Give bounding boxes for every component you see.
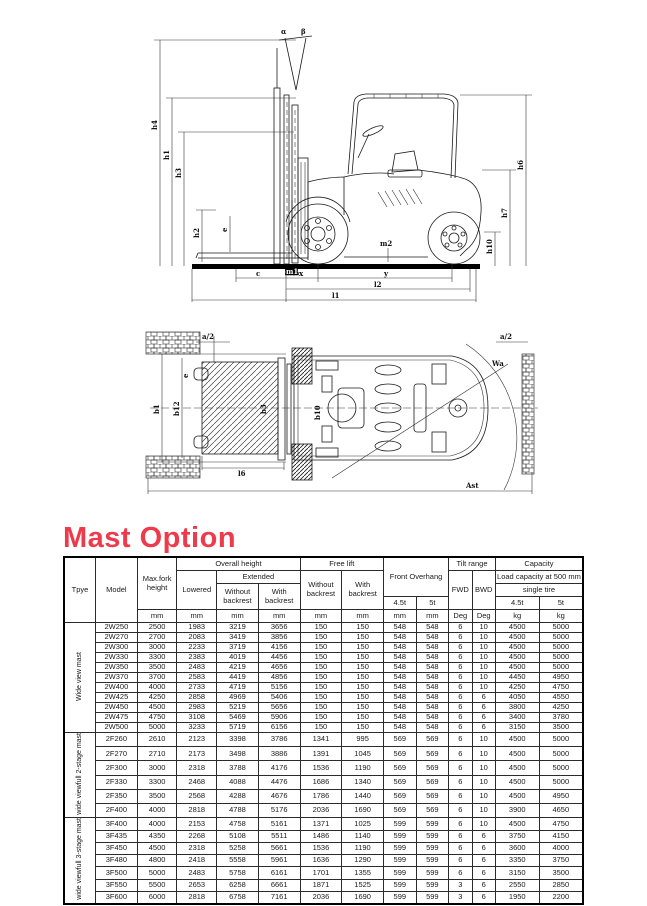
header-fwd: FWD [449, 571, 472, 610]
header-fl-without-backrest: Without backrest [300, 571, 342, 610]
dim-b10: b10 [313, 405, 322, 420]
spec-cell: 1045 [342, 747, 384, 761]
spec-cell: 4856 [258, 673, 300, 683]
spec-cell: 3750 [495, 830, 539, 842]
model-cell: 2F270 [96, 747, 138, 761]
page-title: Mast Option [63, 522, 236, 555]
spec-cell: 150 [300, 643, 342, 653]
spec-cell: 1440 [342, 789, 384, 803]
spec-cell: 599 [384, 818, 417, 830]
spec-cell: 5000 [539, 623, 583, 633]
table-header: Tpye Model Max.fork height Overall heigh… [64, 557, 583, 623]
spec-cell: 569 [384, 733, 417, 747]
spec-cell: 2700 [137, 633, 177, 643]
spec-cell: 599 [384, 855, 417, 867]
spec-cell: 548 [416, 643, 449, 653]
table-row: Wide view mast2W250250019833219365615015… [64, 623, 583, 633]
spec-cell: 2318 [177, 842, 217, 854]
spec-cell: 150 [342, 693, 384, 703]
spec-cell: 4500 [137, 703, 177, 713]
spec-cell: 548 [384, 703, 417, 713]
spec-cell: 5511 [258, 830, 300, 842]
spec-cell: 1950 [495, 891, 539, 903]
spec-cell: 6 [449, 643, 472, 653]
spec-cell: 3500 [137, 663, 177, 673]
spec-cell: 150 [342, 683, 384, 693]
spec-cell: 4650 [539, 804, 583, 818]
spec-cell: 6 [449, 633, 472, 643]
spec-cell: 1355 [342, 867, 384, 879]
spec-cell: 569 [384, 789, 417, 803]
spec-cell: 548 [416, 653, 449, 663]
spec-cell: 5176 [258, 804, 300, 818]
spec-cell: 4176 [258, 761, 300, 775]
spec-cell: 4288 [217, 789, 259, 803]
dim-c: c [256, 269, 260, 278]
spec-cell: 150 [342, 673, 384, 683]
model-cell: 3F500 [96, 867, 138, 879]
spec-cell: 1025 [342, 818, 384, 830]
unit-cell: mm [300, 610, 342, 623]
spec-cell: 3000 [137, 761, 177, 775]
spec-cell: 4788 [217, 804, 259, 818]
spec-cell: 10 [472, 623, 495, 633]
spec-cell: 5000 [539, 775, 583, 789]
header-front-overhang: Front Overhang [384, 557, 449, 597]
spec-cell: 1190 [342, 761, 384, 775]
spec-cell: 569 [416, 804, 449, 818]
spec-cell: 6 [449, 703, 472, 713]
spec-cell: 6156 [258, 723, 300, 733]
dim-e-top: e [181, 373, 190, 378]
spec-cell: 6 [472, 713, 495, 723]
spec-cell: 548 [384, 713, 417, 723]
spec-cell: 5558 [217, 855, 259, 867]
spec-cell: 3 [449, 879, 472, 891]
spec-cell: 6 [449, 830, 472, 842]
table-row: 2W50050003233571961561501505485486631503… [64, 723, 583, 733]
spec-cell: 548 [384, 633, 417, 643]
spec-cell: 6 [472, 723, 495, 733]
spec-cell: 548 [416, 673, 449, 683]
spec-cell: 6 [472, 879, 495, 891]
spec-cell: 6 [449, 804, 472, 818]
spec-cell: 548 [416, 683, 449, 693]
header-tilt-range: Tilt range [449, 557, 496, 571]
spec-cell: 5000 [539, 761, 583, 775]
spec-cell: 599 [416, 867, 449, 879]
header-max-fork-height: Max.fork height [137, 557, 177, 610]
spec-cell: 5000 [137, 723, 177, 733]
spec-cell: 6 [449, 747, 472, 761]
model-cell: 2F330 [96, 775, 138, 789]
spec-cell: 3150 [495, 723, 539, 733]
spec-cell: 599 [416, 830, 449, 842]
unit-cell: mm [137, 610, 177, 623]
table-row: 2W33033002383401944561501505485486104500… [64, 653, 583, 663]
spec-cell: 150 [342, 663, 384, 673]
mast-type-label: wide viewfull 2-stage mast [64, 733, 96, 818]
spec-cell: 10 [472, 643, 495, 653]
spec-cell: 4450 [495, 673, 539, 683]
spec-cell: 2568 [177, 789, 217, 803]
spec-cell: 2268 [177, 830, 217, 842]
spec-cell: 599 [384, 830, 417, 842]
spec-cell: 4419 [217, 673, 259, 683]
spec-cell: 6 [449, 673, 472, 683]
spec-cell: 6161 [258, 867, 300, 879]
unit-cell: mm [177, 610, 217, 623]
header-cap-45t: 4.5t [495, 597, 539, 610]
unit-cell: mm [342, 610, 384, 623]
spec-cell: 3788 [217, 761, 259, 775]
spec-cell: 2500 [137, 623, 177, 633]
spec-cell: 548 [416, 693, 449, 703]
spec-cell: 6 [449, 818, 472, 830]
spec-cell: 150 [342, 653, 384, 663]
spec-cell: 150 [342, 633, 384, 643]
spec-cell: 6 [472, 693, 495, 703]
spec-cell: 1536 [300, 761, 342, 775]
spec-cell: 150 [300, 693, 342, 703]
spec-cell: 4969 [217, 693, 259, 703]
spec-cell: 4500 [495, 623, 539, 633]
spec-cell: 4500 [495, 789, 539, 803]
spec-cell: 2468 [177, 775, 217, 789]
spec-cell: 2818 [177, 804, 217, 818]
table-row: 2W35035002483421946561501505485486104500… [64, 663, 583, 673]
spec-cell: 6000 [137, 891, 177, 903]
spec-cell: 548 [384, 653, 417, 663]
dim-h4: h4 [150, 120, 159, 130]
spec-cell: 599 [416, 842, 449, 854]
dim-h3: h3 [174, 168, 183, 178]
spec-cell: 6 [472, 855, 495, 867]
spec-cell: 5161 [258, 818, 300, 830]
table-row: 2W30030002233371941561501505485486104500… [64, 643, 583, 653]
spec-cell: 3108 [177, 713, 217, 723]
spec-cell: 150 [300, 713, 342, 723]
spec-cell: 6 [449, 683, 472, 693]
header-overall-height: Overall height [177, 557, 300, 571]
spec-cell: 2983 [177, 703, 217, 713]
spec-cell: 150 [300, 633, 342, 643]
spec-cell: 1190 [342, 842, 384, 854]
model-cell: 2W425 [96, 693, 138, 703]
dim-e: e [220, 227, 229, 232]
spec-cell: 2710 [137, 747, 177, 761]
spec-cell: 569 [384, 804, 417, 818]
spec-cell: 6 [449, 855, 472, 867]
spec-cell: 599 [416, 879, 449, 891]
unit-cell: kg [539, 610, 583, 623]
table-row: 2W40040002733471951561501505485486104250… [64, 683, 583, 693]
dim-l6: l6 [238, 469, 246, 478]
spec-cell: 6661 [258, 879, 300, 891]
spec-cell: 1140 [342, 830, 384, 842]
spec-cell: 3150 [495, 867, 539, 879]
spec-cell: 548 [416, 723, 449, 733]
spec-cell: 150 [342, 643, 384, 653]
spec-cell: 4250 [495, 683, 539, 693]
spec-cell: 599 [384, 842, 417, 854]
spec-cell: 4500 [495, 775, 539, 789]
spec-cell: 5000 [539, 747, 583, 761]
spec-cell: 3856 [258, 633, 300, 643]
spec-cell: 2418 [177, 855, 217, 867]
table-row: wide viewfull 3-stage mast3F400400021534… [64, 818, 583, 830]
spec-cell: 5258 [217, 842, 259, 854]
spec-cell: 2036 [300, 804, 342, 818]
spec-cell: 3786 [258, 733, 300, 747]
spec-cell: 6 [449, 789, 472, 803]
spec-cell: 4000 [539, 842, 583, 854]
dim-h7: h7 [500, 208, 509, 218]
dim-y: y [383, 269, 389, 278]
spec-cell: 10 [472, 733, 495, 747]
spec-cell: 4456 [258, 653, 300, 663]
spec-cell: 4656 [258, 663, 300, 673]
model-cell: 3F480 [96, 855, 138, 867]
spec-cell: 150 [300, 673, 342, 683]
spec-cell: 3500 [137, 789, 177, 803]
model-cell: 2W500 [96, 723, 138, 733]
spec-cell: 6 [472, 842, 495, 854]
forklift-top-view-drawing: a/2 a/2 b1 b12 e b3 l6 [136, 328, 548, 500]
unit-cell: kg [495, 610, 539, 623]
spec-cell: 2850 [539, 879, 583, 891]
spec-cell: 5219 [217, 703, 259, 713]
spec-cell: 4000 [137, 683, 177, 693]
spec-cell: 2318 [177, 761, 217, 775]
spec-cell: 10 [472, 633, 495, 643]
spec-cell: 4676 [258, 789, 300, 803]
dim-h6: h6 [516, 160, 525, 170]
spec-cell: 5000 [539, 633, 583, 643]
spec-cell: 3398 [217, 733, 259, 747]
dim-a2-right: a/2 [500, 332, 512, 341]
header-fo-5t: 5t [416, 597, 449, 610]
spec-cell: 599 [416, 855, 449, 867]
spec-cell: 1525 [342, 879, 384, 891]
header-cap-5t: 5t [539, 597, 583, 610]
spec-cell: 1686 [300, 775, 342, 789]
header-bwd: BWD [472, 571, 495, 610]
spec-cell: 599 [384, 879, 417, 891]
spec-cell: 4719 [217, 683, 259, 693]
spec-cell: 150 [342, 723, 384, 733]
spec-cell: 5000 [539, 643, 583, 653]
spec-cell: 3219 [217, 623, 259, 633]
spec-cell: 5108 [217, 830, 259, 842]
spec-cell: 6 [449, 775, 472, 789]
spec-cell: 5406 [258, 693, 300, 703]
spec-cell: 3800 [495, 703, 539, 713]
spec-cell: 4500 [495, 761, 539, 775]
spec-cell: 2173 [177, 747, 217, 761]
model-cell: 2F400 [96, 804, 138, 818]
dim-ast: Ast [465, 481, 479, 490]
spec-cell: 548 [416, 713, 449, 723]
spec-cell: 1636 [300, 855, 342, 867]
spec-cell: 995 [342, 733, 384, 747]
header-single-tire: single tire [495, 584, 583, 597]
spec-cell: 6 [449, 842, 472, 854]
spec-cell: 3400 [495, 713, 539, 723]
spec-cell: 4088 [217, 775, 259, 789]
spec-cell: 2653 [177, 879, 217, 891]
spec-cell: 4500 [495, 733, 539, 747]
mast-type-text: Wide view mast [76, 652, 84, 701]
table-row: 3F45045002318525856611536119059959966360… [64, 842, 583, 854]
header-type: Tpye [64, 557, 96, 623]
model-cell: 2F260 [96, 733, 138, 747]
spec-cell: 569 [416, 761, 449, 775]
spec-cell: 150 [342, 623, 384, 633]
spec-cell: 1786 [300, 789, 342, 803]
spec-cell: 4219 [217, 663, 259, 673]
spec-cell: 6 [449, 693, 472, 703]
spec-cell: 1871 [300, 879, 342, 891]
spec-cell: 548 [384, 643, 417, 653]
spec-cell: 2483 [177, 867, 217, 879]
spec-cell: 1486 [300, 830, 342, 842]
spec-cell: 569 [384, 747, 417, 761]
spec-cell: 2858 [177, 693, 217, 703]
spec-cell: 5758 [217, 867, 259, 879]
model-cell: 2F350 [96, 789, 138, 803]
unit-cell: mm [258, 610, 300, 623]
model-cell: 2W330 [96, 653, 138, 663]
spec-cell: 4050 [495, 693, 539, 703]
spec-cell: 599 [416, 818, 449, 830]
spec-cell: 3500 [539, 723, 583, 733]
spec-cell: 10 [472, 747, 495, 761]
table-row: 2W42542502858496954061501505485486640504… [64, 693, 583, 703]
dim-m1: m1 [286, 267, 298, 276]
spec-cell: 1690 [342, 891, 384, 903]
mast-type-label: wide viewfull 3-stage mast [64, 818, 96, 904]
unit-cell: mm [416, 610, 449, 623]
spec-cell: 6 [449, 663, 472, 673]
spec-cell: 10 [472, 683, 495, 693]
spec-cell: 4250 [137, 693, 177, 703]
spec-cell: 548 [416, 633, 449, 643]
spec-cell: 5000 [539, 663, 583, 673]
spec-cell: 150 [300, 653, 342, 663]
table-row: 3F43543502268510855111486114059959966375… [64, 830, 583, 842]
spec-cell: 10 [472, 804, 495, 818]
spec-cell: 4950 [539, 789, 583, 803]
model-cell: 2W400 [96, 683, 138, 693]
model-cell: 2W450 [96, 703, 138, 713]
spec-cell: 4550 [539, 693, 583, 703]
table-body: Wide view mast2W250250019833219365615015… [64, 623, 583, 904]
mast-type-label: Wide view mast [64, 623, 96, 733]
spec-cell: 1371 [300, 818, 342, 830]
spec-cell: 4500 [495, 818, 539, 830]
dim-l2: l2 [374, 280, 382, 289]
table-row: 2F30030002318378841761536119056956961045… [64, 761, 583, 775]
spec-cell: 5469 [217, 713, 259, 723]
spec-cell: 4350 [137, 830, 177, 842]
spec-cell: 4250 [539, 703, 583, 713]
model-cell: 3F400 [96, 818, 138, 830]
dim-x: x [299, 269, 304, 278]
spec-cell: 150 [300, 663, 342, 673]
table-row: 3F60060002818675871612036169059959936195… [64, 891, 583, 903]
spec-cell: 6758 [217, 891, 259, 903]
dim-b12: b12 [172, 401, 181, 416]
spec-cell: 3 [449, 891, 472, 903]
spec-cell: 1341 [300, 733, 342, 747]
table-row: 2W47547503108546959061501505485486634003… [64, 713, 583, 723]
spec-cell: 2610 [137, 733, 177, 747]
spec-cell: 548 [384, 683, 417, 693]
spec-cell: 6 [449, 623, 472, 633]
dim-alpha: α [281, 27, 287, 36]
mast-type-text: wide viewfull 3-stage mast [76, 818, 84, 900]
spec-cell: 3350 [495, 855, 539, 867]
forklift-side-view-drawing: α β h4 h1 h3 h2 e [146, 10, 578, 322]
dim-wa: Wa [491, 359, 504, 368]
model-cell: 3F450 [96, 842, 138, 854]
spec-cell: 3656 [258, 623, 300, 633]
spec-cell: 1983 [177, 623, 217, 633]
spec-cell: 569 [416, 789, 449, 803]
spec-cell: 4800 [137, 855, 177, 867]
spec-cell: 4000 [137, 818, 177, 830]
dim-h2: h2 [192, 228, 201, 238]
spec-cell: 548 [416, 703, 449, 713]
spec-cell: 10 [472, 775, 495, 789]
spec-cell: 3300 [137, 775, 177, 789]
mast-option-table: Tpye Model Max.fork height Overall heigh… [63, 556, 584, 905]
spec-cell: 10 [472, 673, 495, 683]
spec-cell: 1340 [342, 775, 384, 789]
header-load-capacity: Load capacity at 500 mm [495, 571, 583, 584]
model-cell: 2W370 [96, 673, 138, 683]
spec-cell: 548 [384, 663, 417, 673]
units-row: mmmmmmmmmmmmmmmmDegDegkgkg [64, 610, 583, 623]
table-row: 2W45045002983521956561501505485486638004… [64, 703, 583, 713]
spec-cell: 3719 [217, 643, 259, 653]
spec-cell: 4500 [137, 842, 177, 854]
spec-cell: 4758 [217, 818, 259, 830]
spec-cell: 3419 [217, 633, 259, 643]
spec-cell: 3886 [258, 747, 300, 761]
spec-cell: 1536 [300, 842, 342, 854]
header-lowered: Lowered [177, 571, 217, 610]
unit-cell: Deg [449, 610, 472, 623]
table-row: 3F50050002483575861611701135559959966315… [64, 867, 583, 879]
spec-cell: 4500 [495, 653, 539, 663]
header-fo-45t: 4.5t [384, 597, 417, 610]
spec-cell: 2123 [177, 733, 217, 747]
header-ext-with-backrest: With backrest [258, 584, 300, 610]
table-row: 3F48048002418555859611636129059959966335… [64, 855, 583, 867]
spec-cell: 569 [416, 733, 449, 747]
model-cell: 3F435 [96, 830, 138, 842]
model-cell: 2W270 [96, 633, 138, 643]
header-extended: Extended [217, 571, 300, 584]
spec-cell: 4950 [539, 673, 583, 683]
spec-cell: 3780 [539, 713, 583, 723]
spec-cell: 4750 [539, 683, 583, 693]
table-row: 2F27027102173349838861391104556956961045… [64, 747, 583, 761]
spec-cell: 4500 [495, 747, 539, 761]
spec-cell: 2036 [300, 891, 342, 903]
